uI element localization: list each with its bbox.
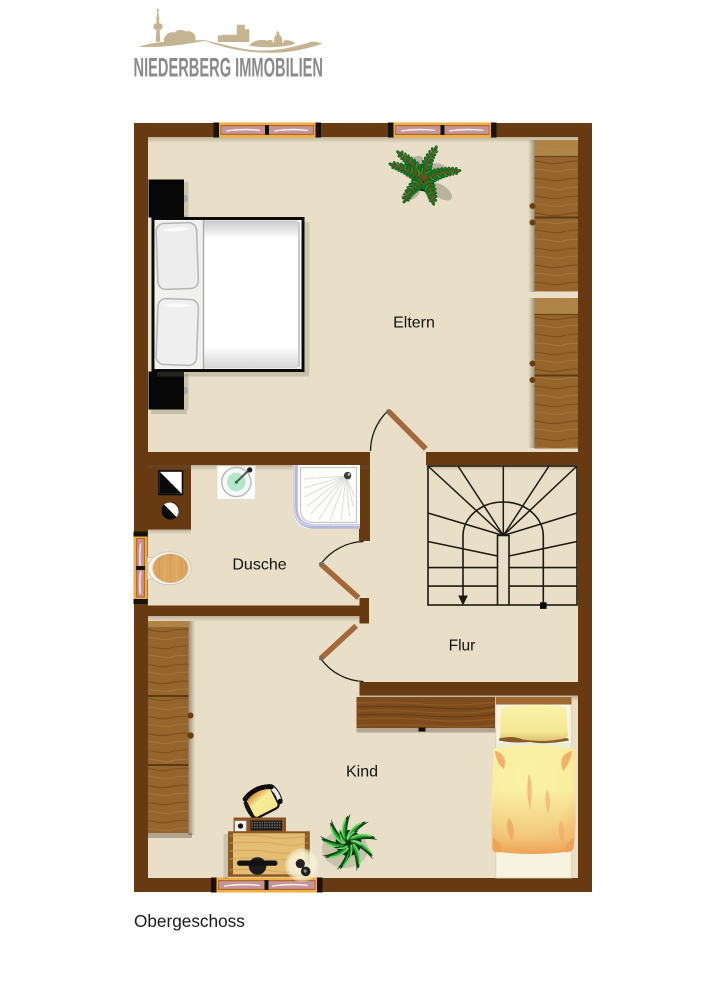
svg-text:Eltern: Eltern — [393, 315, 435, 332]
svg-text:Obergeschoss: Obergeschoss — [134, 911, 245, 931]
svg-text:Flur: Flur — [449, 638, 476, 655]
svg-text:Dusche: Dusche — [232, 557, 286, 574]
svg-text:Kind: Kind — [346, 764, 378, 781]
svg-text:NIEDERBERG IMMOBILIEN: NIEDERBERG IMMOBILIEN — [134, 53, 324, 83]
